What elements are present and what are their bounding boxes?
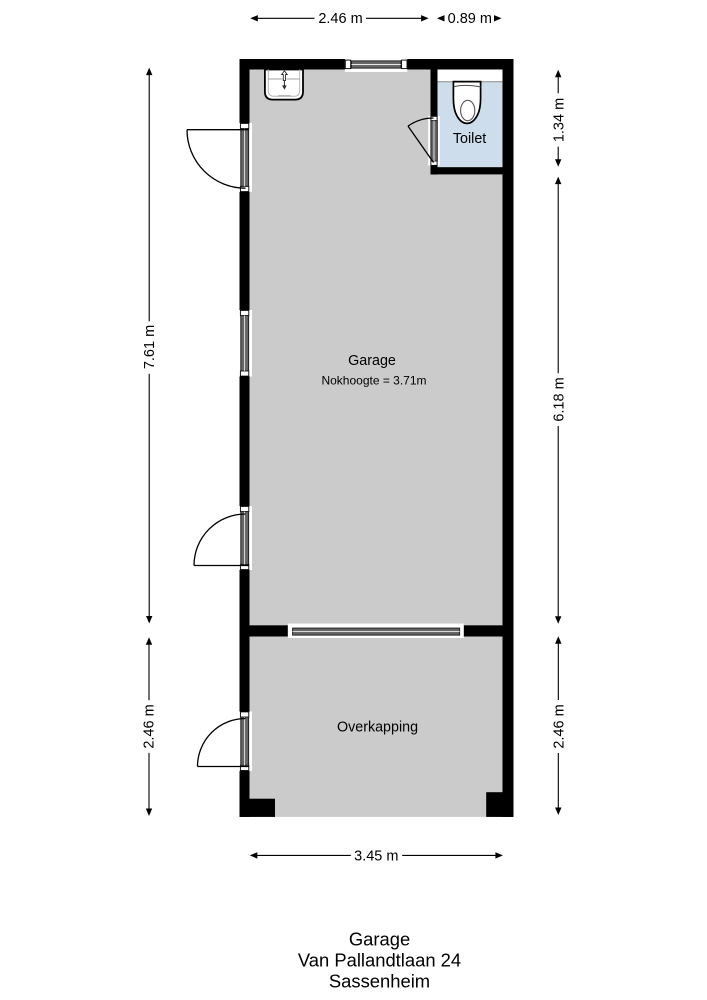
svg-text:2.46 m: 2.46 m bbox=[142, 704, 158, 748]
svg-text:Toilet: Toilet bbox=[453, 131, 486, 147]
svg-text:Garage: Garage bbox=[348, 353, 396, 369]
svg-text:2.46 m: 2.46 m bbox=[552, 704, 568, 748]
svg-text:6.18 m: 6.18 m bbox=[551, 377, 567, 421]
svg-text:Overkapping: Overkapping bbox=[337, 720, 418, 736]
svg-text:3.45 m: 3.45 m bbox=[354, 848, 398, 864]
svg-text:Van Pallandtlaan 24: Van Pallandtlaan 24 bbox=[298, 949, 461, 970]
svg-text:2.46 m: 2.46 m bbox=[318, 11, 362, 27]
svg-text:7.61 m: 7.61 m bbox=[142, 325, 158, 369]
svg-text:Nokhoogte = 3.71m: Nokhoogte = 3.71m bbox=[321, 374, 426, 388]
svg-text:1.34 m: 1.34 m bbox=[551, 98, 567, 142]
svg-text:0.89 m: 0.89 m bbox=[448, 11, 492, 27]
svg-text:Garage: Garage bbox=[349, 928, 410, 949]
svg-text:Sassenheim: Sassenheim bbox=[329, 970, 430, 991]
